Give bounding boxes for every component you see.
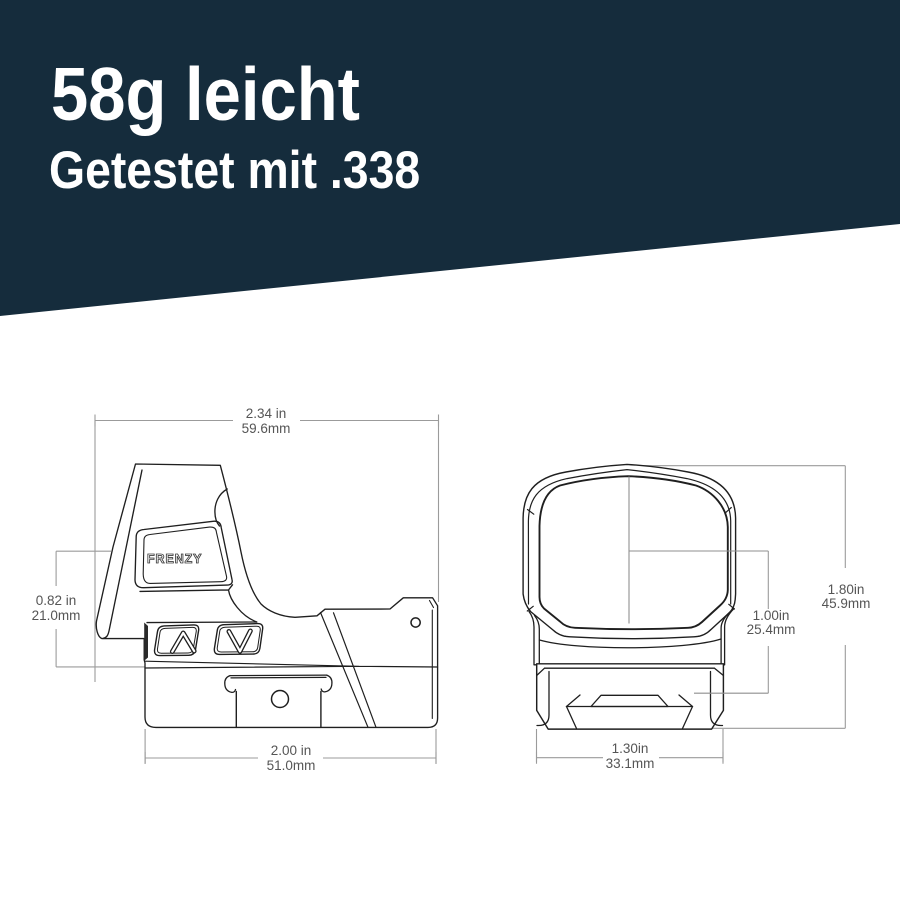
svg-text:45.9mm: 45.9mm xyxy=(822,596,871,611)
svg-text:2.34 in: 2.34 in xyxy=(246,406,287,421)
svg-text:FRENZY: FRENZY xyxy=(147,552,202,566)
svg-text:33.1mm: 33.1mm xyxy=(606,756,655,771)
svg-text:1.00in: 1.00in xyxy=(753,608,790,623)
svg-text:2.00 in: 2.00 in xyxy=(271,743,312,758)
svg-text:51.0mm: 51.0mm xyxy=(267,758,316,773)
svg-text:1.30in: 1.30in xyxy=(612,741,649,756)
svg-text:21.0mm: 21.0mm xyxy=(32,608,81,623)
svg-text:25.4mm: 25.4mm xyxy=(747,622,796,637)
svg-text:59.6mm: 59.6mm xyxy=(242,421,291,436)
svg-text:1.80in: 1.80in xyxy=(828,582,865,597)
svg-text:0.82 in: 0.82 in xyxy=(36,593,77,608)
